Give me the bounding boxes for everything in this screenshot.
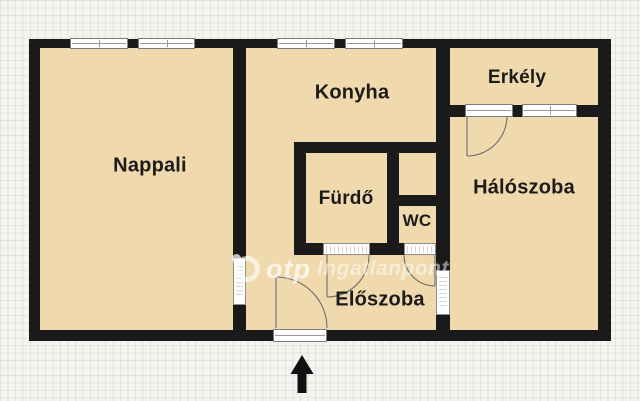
wall-outer-left [29,39,40,341]
wall-nappali-upper [233,48,246,260]
wall-erkely-divider-post [513,105,522,117]
window-konyha-1 [277,38,335,49]
door-erkely [465,104,513,117]
window-nappali-1 [70,38,128,49]
otp-logo-icon [234,256,260,282]
wall-erkely-divider-left [450,105,465,117]
entrance-arrow-icon [291,355,314,393]
window-konyha-2 [345,38,403,49]
wall-block-top [294,142,450,153]
room-label-konyha: Konyha [315,82,390,105]
floorplan-sheet: Nappali Konyha Erkély Hálószoba Fürdő WC… [0,0,640,401]
wall-outer-right [598,39,611,341]
wall-haloszoba-upper [436,48,450,270]
wall-wc-shaft-divider [399,195,436,206]
door-entrance [273,329,327,342]
wall-nappali-lower [233,305,246,330]
wall-furdo-wc-divider [387,142,399,255]
room-label-erkely: Erkély [488,67,546,89]
watermark-brand: otp [266,254,311,285]
room-label-wc: WC [403,211,432,231]
room-label-eloszoba: Előszoba [335,289,424,312]
wall-block-left [294,142,306,255]
window-post-konyha [335,39,345,48]
window-nappali-2 [138,38,195,49]
watermark: otp Ingatlanpont [234,252,449,286]
room-label-furdo: Fürdő [319,188,374,210]
watermark-suffix: Ingatlanpont [317,257,449,281]
wall-erkely-divider-right [577,105,598,117]
wall-haloszoba-lower [436,315,450,330]
window-post-nappali [128,39,138,48]
room-label-nappali: Nappali [113,155,187,178]
window-haloszoba [522,104,577,117]
room-label-haloszoba: Hálószoba [473,177,575,200]
